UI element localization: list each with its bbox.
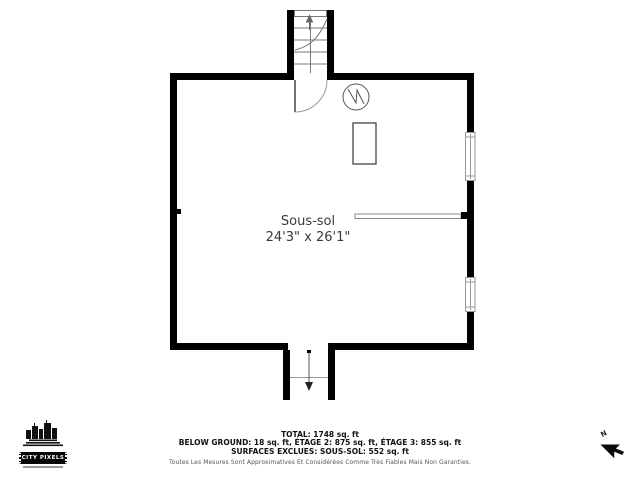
entry-door-swing-icon <box>295 80 327 112</box>
summary-exclusions: SURFACES EXCLUES: SOUS-SOL: 552 sq. ft <box>0 448 640 456</box>
area-summary: TOTAL: 1748 sq. ft BELOW GROUND: 18 sq. … <box>0 431 640 466</box>
window-upper-icon <box>466 133 476 181</box>
logo-skyline-icon <box>19 420 67 447</box>
room-name: Sous-sol <box>158 214 458 230</box>
electrical-panel-icon <box>343 84 369 110</box>
appliance-box-icon <box>353 123 376 164</box>
exterior-walls <box>170 73 474 350</box>
exit-down-arrow-icon <box>305 350 313 391</box>
compass: N <box>594 429 634 475</box>
north-label: N <box>599 429 608 439</box>
measurement-disclaimer: Toutes Les Mesures Sont Approximatives E… <box>0 459 640 466</box>
floor-plan-page: Sous-sol 24'3" x 26'1" TOTAL: 1748 sq. f… <box>0 0 640 480</box>
window-lower-icon <box>466 278 476 312</box>
logo-tagline-line <box>23 466 63 468</box>
city-pixels-logo: CITY PIXELS <box>19 420 67 468</box>
staircase-up-icon <box>287 10 334 73</box>
north-arrow-icon <box>596 439 626 471</box>
exterior-entry-icon <box>283 350 335 400</box>
room-label-block: Sous-sol 24'3" x 26'1" <box>158 214 458 246</box>
room-dimensions: 24'3" x 26'1" <box>158 230 458 246</box>
logo-wordmark: CITY PIXELS <box>19 452 67 464</box>
